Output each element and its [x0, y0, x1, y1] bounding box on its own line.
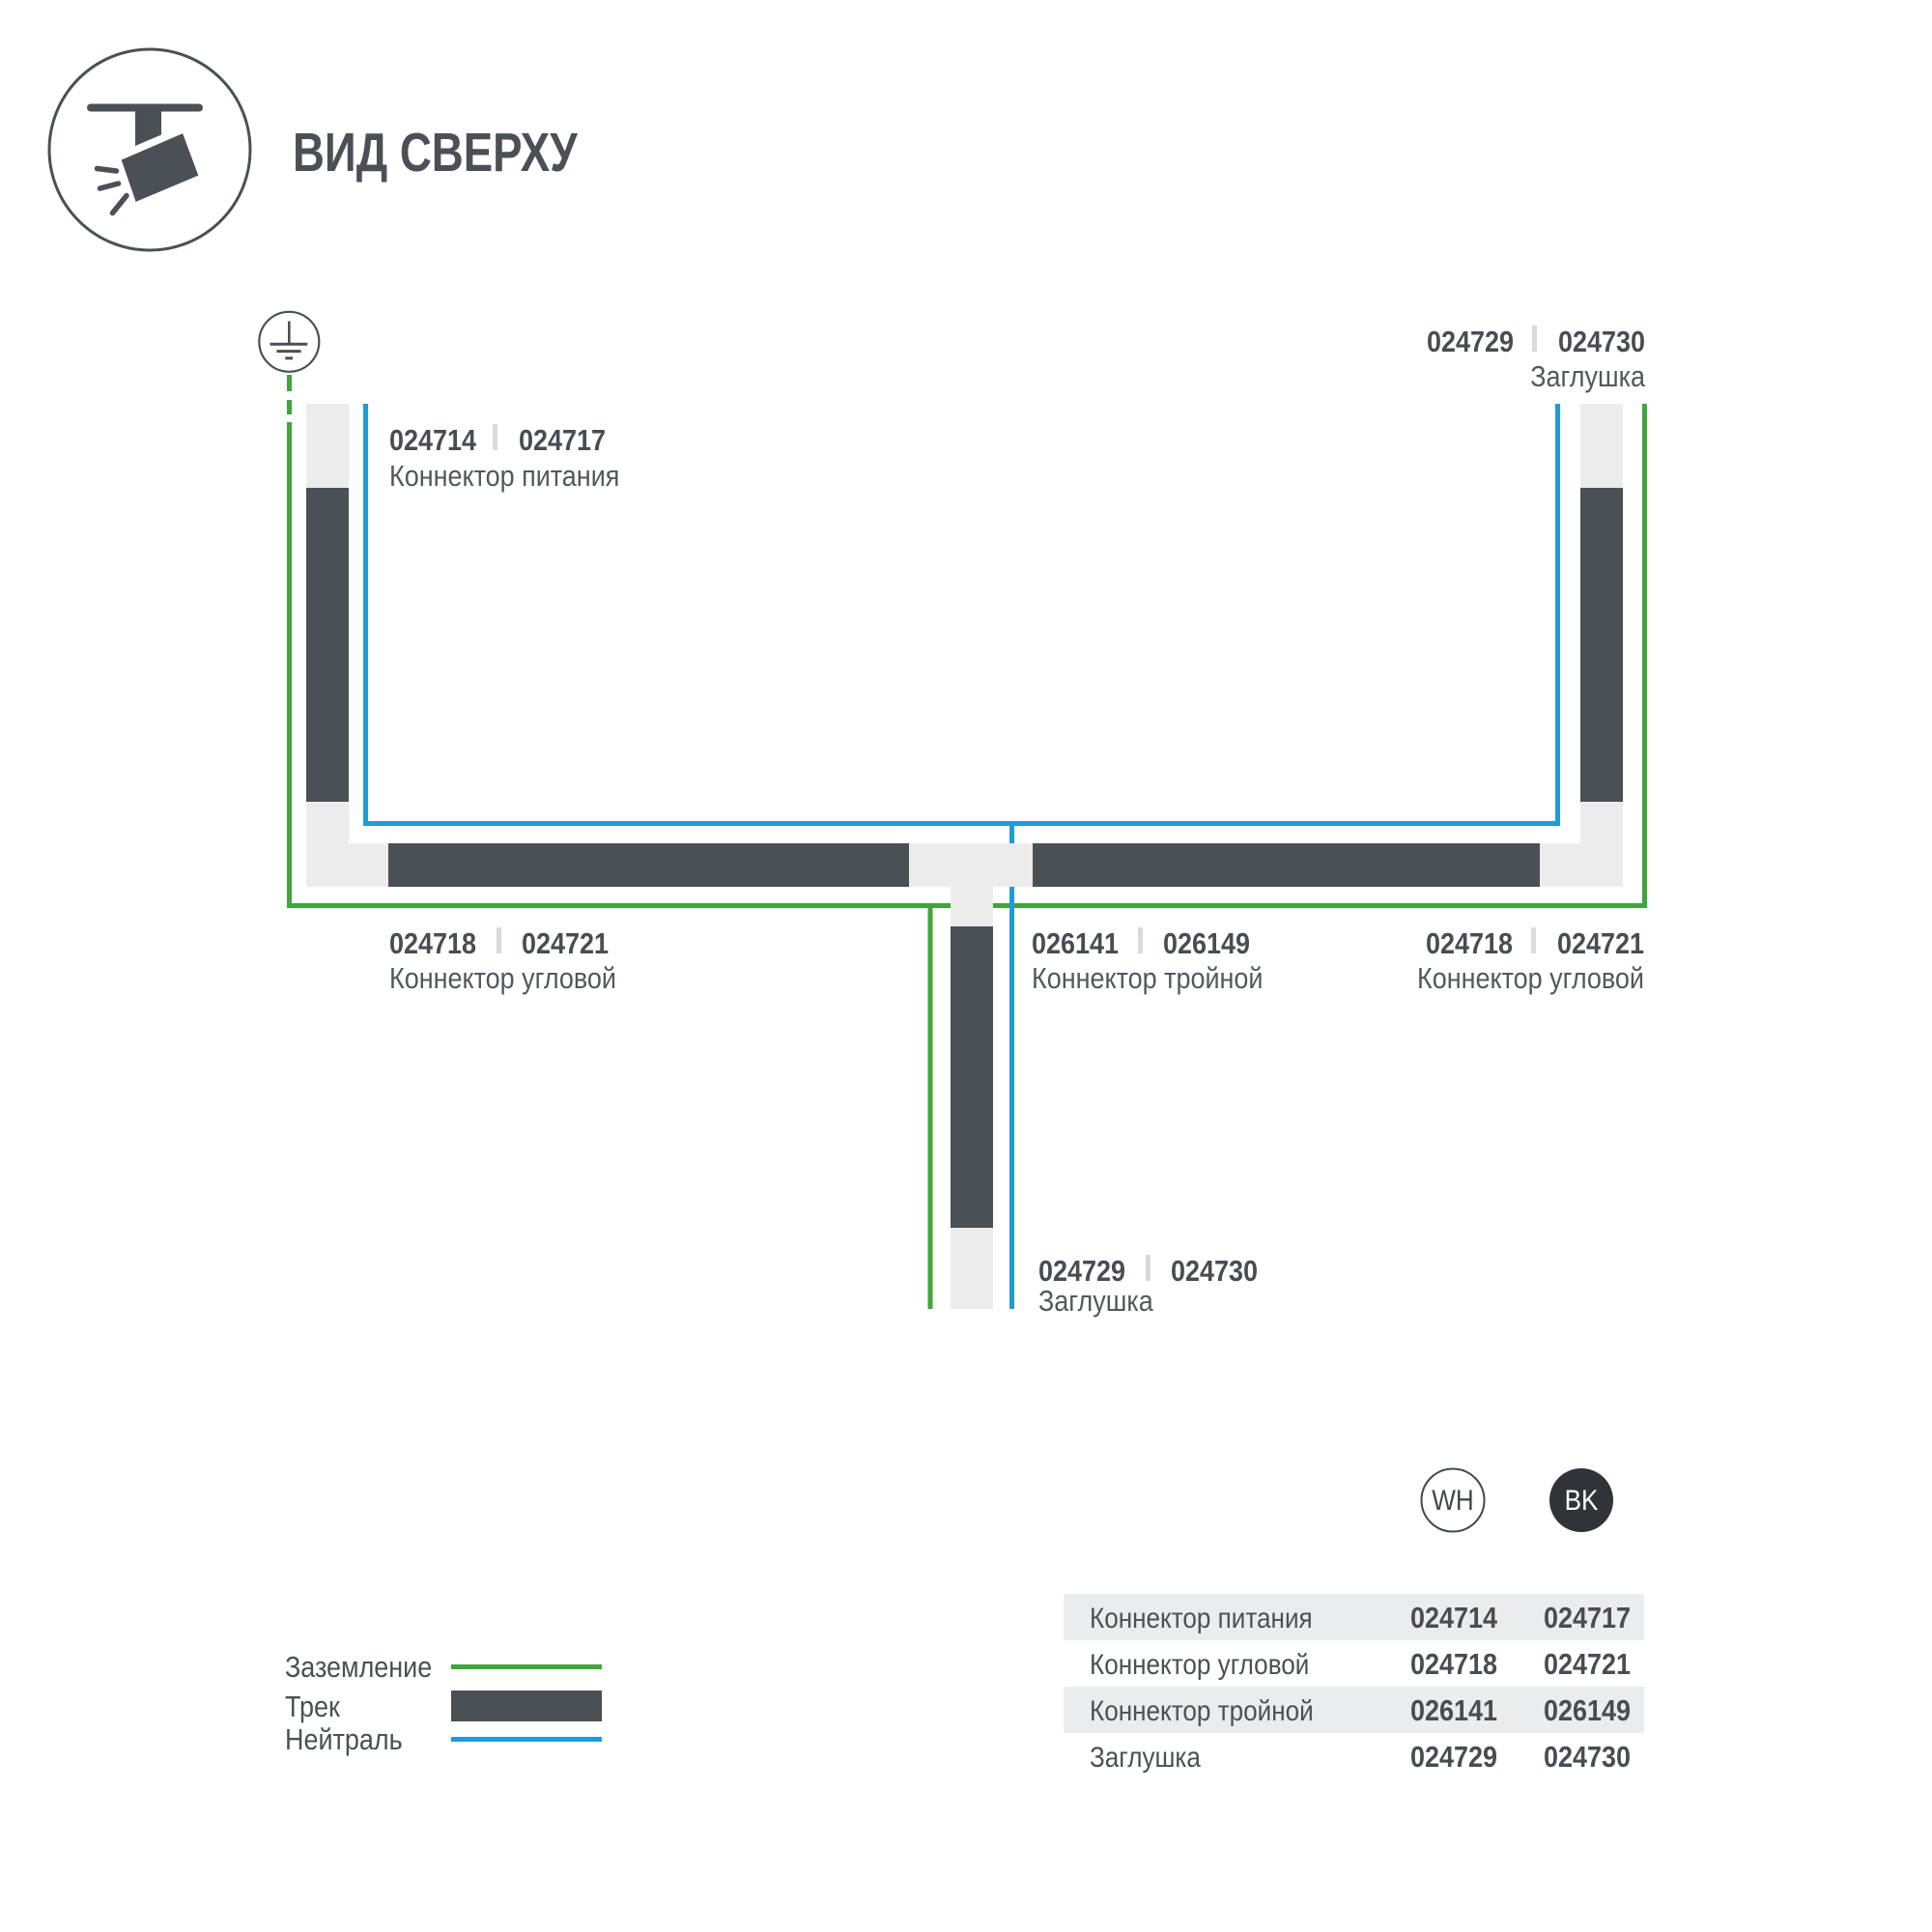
svg-text:024729: 024729 [1427, 326, 1514, 358]
svg-text:024714: 024714 [389, 424, 476, 457]
svg-text:024717: 024717 [1544, 1602, 1631, 1634]
svg-text:024729: 024729 [1038, 1255, 1125, 1288]
svg-text:026141: 026141 [1410, 1694, 1497, 1727]
svg-text:WH: WH [1432, 1484, 1473, 1516]
svg-text:Коннектор питания: Коннектор питания [389, 460, 619, 493]
svg-text:024721: 024721 [1544, 1648, 1631, 1681]
svg-text:024714: 024714 [1410, 1602, 1497, 1634]
svg-text:024730: 024730 [1544, 1741, 1631, 1774]
svg-text:Нейтраль: Нейтраль [285, 1723, 403, 1756]
svg-text:Коннектор тройной: Коннектор тройной [1032, 962, 1263, 995]
svg-text:024718: 024718 [389, 927, 476, 960]
svg-text:Коннектор угловой: Коннектор угловой [389, 962, 616, 995]
svg-text:024729: 024729 [1410, 1741, 1497, 1774]
svg-text:Трек: Трек [285, 1690, 340, 1723]
svg-text:Заземление: Заземление [285, 1651, 432, 1684]
svg-text:026141: 026141 [1032, 927, 1119, 960]
svg-text:024717: 024717 [519, 424, 606, 457]
svg-text:Коннектор угловой: Коннектор угловой [1090, 1648, 1309, 1680]
svg-text:024730: 024730 [1558, 326, 1645, 358]
svg-text:BK: BK [1565, 1484, 1599, 1516]
svg-text:Заглушка: Заглушка [1038, 1285, 1154, 1318]
svg-text:Заглушка: Заглушка [1090, 1741, 1201, 1773]
svg-text:Коннектор питания: Коннектор питания [1090, 1602, 1313, 1634]
svg-text:024721: 024721 [1557, 927, 1644, 960]
svg-text:024718: 024718 [1426, 927, 1513, 960]
svg-text:024730: 024730 [1171, 1255, 1258, 1288]
svg-text:Заглушка: Заглушка [1530, 360, 1646, 393]
svg-text:026149: 026149 [1544, 1694, 1631, 1727]
svg-text:024721: 024721 [522, 927, 609, 960]
svg-text:026149: 026149 [1163, 927, 1250, 960]
svg-text:ВИД СВЕРХУ: ВИД СВЕРХУ [293, 121, 578, 183]
svg-text:Коннектор угловой: Коннектор угловой [1417, 962, 1644, 995]
svg-text:Коннектор тройной: Коннектор тройной [1090, 1694, 1314, 1726]
svg-text:024718: 024718 [1410, 1648, 1497, 1681]
